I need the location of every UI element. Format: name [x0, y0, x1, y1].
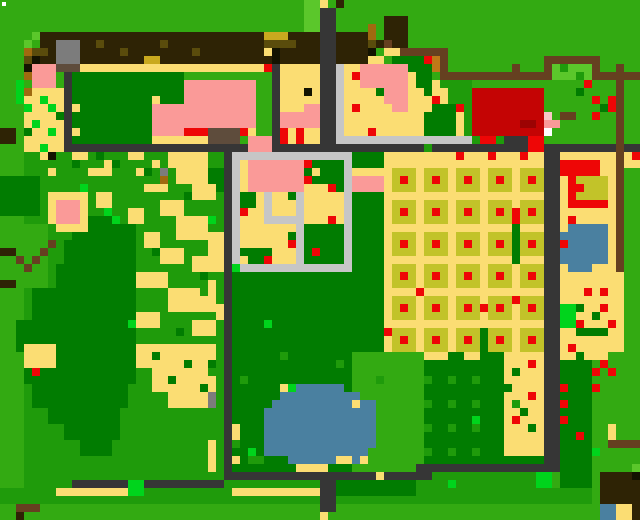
- tile-red-marker: [264, 256, 272, 264]
- tile-roof-pink: [360, 64, 408, 88]
- tile-sand-path: [360, 456, 368, 464]
- tile-sand-path: [264, 48, 272, 56]
- tile-grass-medium: [512, 400, 520, 408]
- tile-grass-bright: [256, 80, 272, 136]
- tile-roof-pink: [184, 80, 256, 128]
- tile-red-marker: [432, 304, 440, 312]
- tile-red-marker: [512, 296, 520, 304]
- tile-sand-path: [88, 168, 112, 176]
- tile-green-vivid: [128, 320, 136, 328]
- tile-grass-medium: [240, 376, 248, 384]
- tile-fence-brown: [512, 64, 520, 72]
- tile-foliage-dark: [432, 104, 456, 112]
- tile-red-marker: [496, 336, 504, 344]
- tile-red-marker: [592, 96, 600, 104]
- tile-sand-path: [208, 280, 216, 296]
- tile-sand-path: [424, 96, 432, 104]
- tile-road-dark: [320, 480, 336, 512]
- tile-green-vivid: [80, 184, 88, 192]
- tile-grass-medium: [448, 448, 456, 456]
- tile-sand-path: [456, 112, 464, 136]
- tile-red-marker: [240, 208, 248, 216]
- tile-foliage-dark: [56, 264, 136, 288]
- tile-black: [368, 48, 376, 56]
- tile-sand-path: [280, 64, 320, 72]
- tile-sand-path: [80, 64, 256, 72]
- tile-water-blue: [568, 264, 592, 272]
- tile-sand-path: [240, 256, 248, 264]
- tile-red-marker: [560, 240, 568, 248]
- tile-foliage-dark: [512, 224, 520, 264]
- tile-red-marker: [568, 344, 576, 352]
- tile-grass-medium: [232, 440, 240, 448]
- tile-wall-light: [232, 152, 352, 160]
- tile-olive-dark: [32, 48, 48, 56]
- tile-sand-path: [24, 344, 56, 368]
- tile-wall-light: [264, 192, 272, 224]
- tile-foliage-dark: [304, 168, 312, 176]
- tile-grass-medium: [472, 448, 480, 456]
- tile-red-marker: [456, 152, 464, 160]
- tile-red-marker: [32, 368, 40, 376]
- tile-foliage-dark: [576, 304, 584, 312]
- tile-gold-brown: [368, 24, 376, 40]
- tile-red-marker: [584, 288, 592, 296]
- tile-fence-brown: [616, 80, 624, 272]
- tile-foliage-dark: [200, 272, 208, 280]
- tile-green-light: [304, 0, 320, 32]
- tile-foliage-dark: [24, 128, 32, 136]
- tile-gold: [264, 32, 288, 40]
- tile-sand-path: [192, 256, 208, 272]
- tile-sand-path: [208, 440, 216, 472]
- tile-red-marker: [464, 240, 472, 248]
- tile-road-dark: [72, 480, 224, 488]
- tile-grass-medium: [424, 424, 432, 432]
- tile-gold-brown: [24, 48, 32, 56]
- tile-road-dark: [424, 464, 552, 472]
- tile-wall-light: [336, 64, 344, 144]
- tile-red-marker: [480, 304, 488, 312]
- tile-grass-medium: [448, 400, 456, 408]
- tile-grass-medium: [576, 72, 584, 80]
- tile-grass-medium: [336, 360, 344, 368]
- tile-red-marker: [528, 272, 536, 280]
- tile-sand-path: [144, 184, 168, 192]
- tile-roof-pink: [56, 200, 80, 224]
- tile-fence-brown: [592, 56, 600, 72]
- tile-fence-brown: [16, 256, 24, 264]
- tile-red-marker: [608, 368, 616, 376]
- tile-red-marker: [432, 336, 440, 344]
- tile-foliage-dark: [184, 192, 192, 200]
- tile-foliage-dark: [480, 328, 488, 352]
- tile-sand-path: [504, 352, 544, 456]
- tile-foliage-dark: [352, 152, 384, 168]
- tile-green-light: [552, 64, 592, 80]
- tile-foliage-dark: [288, 232, 296, 240]
- tile-white: [2, 2, 6, 6]
- tile-sand-path: [320, 512, 328, 520]
- tile-red-marker: [528, 136, 544, 144]
- tile-fence-brown: [440, 56, 448, 72]
- tile-sand-path: [136, 272, 168, 288]
- tile-brown-dark: [16, 512, 24, 520]
- tile-sand-path: [336, 456, 352, 464]
- tile-red-marker: [432, 208, 440, 216]
- tile-foliage-dark: [528, 424, 536, 432]
- tile-foliage-dark: [504, 384, 512, 392]
- tile-red-marker: [304, 176, 312, 184]
- tile-foliage-dark: [376, 88, 384, 96]
- tile-wall-light: [344, 160, 352, 264]
- tile-green-light: [632, 464, 640, 472]
- tile-foliage-dark: [200, 384, 208, 392]
- tile-sand-path: [616, 504, 632, 520]
- tile-taupe: [208, 128, 240, 144]
- tile-grass-medium: [472, 424, 480, 432]
- tile-foliage-dark: [112, 160, 120, 168]
- tile-red-marker: [600, 304, 608, 312]
- tile-green-vivid: [40, 144, 48, 152]
- tile-red-marker: [400, 336, 408, 344]
- tile-sand-path: [144, 232, 160, 248]
- tile-road-dark: [544, 152, 560, 472]
- tile-water-blue: [368, 400, 376, 448]
- tile-red-marker: [592, 112, 600, 120]
- tile-foliage-dark: [520, 408, 528, 416]
- tile-red-marker: [512, 416, 520, 424]
- tile-green-light: [24, 40, 32, 48]
- tile-sand-path: [48, 168, 56, 176]
- tile-foliage-dark: [176, 328, 184, 336]
- tile-red-marker: [240, 128, 248, 136]
- tile-wall-light: [232, 160, 240, 264]
- tile-foliage-dark: [600, 104, 608, 112]
- tile-water-blue: [568, 224, 608, 264]
- tile-foliage-dark: [64, 240, 136, 264]
- tile-red-marker: [432, 240, 440, 248]
- tile-fence-brown: [544, 56, 552, 80]
- tile-sand-path: [432, 80, 440, 88]
- tile-green-vivid: [104, 208, 112, 216]
- tile-gold-brown: [24, 88, 32, 96]
- tile-sand-path: [160, 200, 184, 216]
- tile-water-blue: [272, 400, 368, 456]
- tile-roof-pink: [544, 120, 560, 128]
- tile-fence-brown: [40, 248, 48, 256]
- tile-sand-path: [152, 136, 208, 144]
- tile-grass-medium: [448, 376, 456, 384]
- tile-red-marker: [528, 336, 536, 344]
- tile-sand-path: [192, 320, 216, 336]
- tile-brown-dark: [40, 32, 336, 64]
- tile-fence-brown: [384, 40, 392, 48]
- tile-fence-brown: [16, 504, 40, 512]
- tile-red-marker: [520, 152, 528, 160]
- tile-red-marker: [576, 432, 584, 440]
- tile-roof-pink: [304, 104, 320, 112]
- tile-water-blue: [560, 232, 568, 264]
- tile-sand-path: [152, 96, 160, 104]
- tile-sand-path: [136, 344, 216, 368]
- tile-sand-path: [128, 208, 144, 224]
- tile-foliage-dark: [152, 352, 160, 360]
- tile-sand-path: [80, 192, 88, 232]
- tile-foliage-dark: [424, 112, 456, 136]
- tile-grass-medium: [376, 376, 384, 384]
- tile-brown-dark: [376, 40, 384, 48]
- tile-sand-path: [128, 152, 144, 160]
- tile-sand-path: [168, 152, 208, 168]
- tile-sand-path: [352, 400, 360, 408]
- tile-red-marker: [512, 208, 520, 224]
- tile-green-vivid: [232, 264, 240, 272]
- tile-road-dark: [272, 64, 280, 144]
- tile-foliage-dark: [512, 368, 520, 376]
- tile-foliage-dark: [32, 288, 136, 320]
- tile-foliage-dark: [96, 152, 104, 160]
- tile-red-marker: [568, 216, 576, 224]
- tile-red-marker: [184, 128, 208, 136]
- tile-red-marker: [528, 304, 536, 312]
- tile-red-marker: [400, 208, 408, 216]
- tile-red-marker: [560, 384, 568, 392]
- tile-red-marker: [496, 240, 504, 248]
- tile-sand-path: [152, 160, 160, 168]
- tile-red-marker: [400, 176, 408, 184]
- tile-red-marker: [600, 288, 608, 296]
- tile-sand-path: [304, 216, 312, 224]
- tile-red-marker: [464, 272, 472, 280]
- tile-road-dark: [224, 152, 232, 472]
- tile-sand-path: [384, 48, 400, 56]
- tile-sand-path: [280, 384, 288, 392]
- tile-sand-path: [168, 392, 208, 408]
- tile-red-marker: [304, 160, 312, 168]
- tile-sand-path: [192, 184, 216, 200]
- tile-grass-medium: [448, 424, 456, 432]
- tile-fence-brown: [616, 64, 624, 72]
- tile-black: [24, 64, 32, 72]
- tile-road-dark: [320, 8, 336, 152]
- tile-fence-brown: [48, 240, 56, 248]
- tile-green-vivid: [448, 480, 456, 488]
- tile-foliage-dark: [80, 440, 112, 456]
- tile-grass-medium: [472, 136, 480, 144]
- tile-gold: [144, 56, 160, 64]
- tile-olive-dark: [24, 56, 32, 64]
- tile-green-vivid: [560, 304, 576, 328]
- tile-red-marker: [584, 80, 592, 88]
- tile-foliage-dark: [288, 192, 296, 200]
- tile-brown-dark: [0, 280, 16, 288]
- tile-fence-brown: [552, 56, 592, 64]
- tile-grass-medium: [424, 448, 432, 456]
- tile-brown-dark: [336, 0, 344, 8]
- tile-foliage-dark: [72, 160, 80, 168]
- tile-water-blue: [296, 384, 344, 392]
- tile-green-vivid: [472, 416, 480, 424]
- tile-red-marker: [600, 360, 608, 368]
- tile-red-marker: [568, 200, 608, 208]
- tile-foliage-dark: [576, 352, 584, 360]
- tile-sand-path: [56, 192, 80, 200]
- tile-sand-path: [72, 152, 88, 160]
- tile-foliage-dark: [336, 480, 416, 496]
- tile-sand-path: [320, 0, 328, 8]
- tile-road-dark: [64, 144, 640, 152]
- tile-stone-gray: [56, 40, 80, 64]
- tile-foliage-dark: [152, 248, 160, 256]
- tile-foliage-dark: [304, 224, 344, 264]
- tile-foliage-dark: [184, 360, 192, 368]
- tile-foliage-dark: [240, 432, 256, 440]
- farm-map-canvas[interactable]: [0, 0, 640, 520]
- tile-red-marker: [560, 160, 600, 176]
- tile-roof-pink: [280, 112, 320, 128]
- tile-green-light: [32, 32, 40, 40]
- tile-red-marker: [264, 64, 272, 72]
- tile-wall-light: [344, 136, 472, 144]
- tile-brown-dark: [0, 248, 16, 256]
- tile-foliage-dark: [56, 112, 64, 120]
- tile-red-marker: [432, 176, 440, 184]
- tile-olive-dark: [160, 40, 168, 48]
- tile-water-blue: [264, 448, 272, 456]
- tile-sand-path: [232, 488, 320, 496]
- tile-grass-medium: [424, 376, 432, 384]
- tile-red-marker: [528, 176, 536, 184]
- tile-red-marker: [296, 128, 304, 144]
- tile-red-marker: [496, 272, 504, 280]
- tile-green-vivid: [536, 472, 552, 488]
- tile-sand-path: [216, 304, 224, 320]
- tile-barn-red-dark: [520, 120, 536, 128]
- tile-green-vivid: [32, 120, 40, 128]
- tile-red-marker: [528, 392, 536, 400]
- tile-sand-path: [432, 88, 448, 96]
- tile-green-vivid: [264, 320, 272, 328]
- tile-red-marker: [288, 240, 296, 248]
- tile-black: [32, 56, 40, 64]
- tile-roof-pink: [384, 88, 408, 104]
- tile-red-marker: [528, 208, 536, 216]
- tile-fence-brown: [592, 72, 640, 80]
- tile-sand-path: [176, 216, 208, 240]
- tile-foliage-dark: [352, 192, 384, 352]
- tile-foliage-dark: [240, 248, 248, 256]
- tile-sand-path: [232, 424, 240, 432]
- tile-red-marker: [400, 304, 408, 312]
- tile-wall-light: [296, 192, 304, 264]
- tile-roof-pink: [248, 160, 304, 192]
- tile-sand-path: [208, 376, 216, 392]
- tile-red-marker: [400, 272, 408, 280]
- tile-red-marker: [464, 208, 472, 216]
- tile-sand-path: [376, 472, 384, 480]
- tile-black: [632, 472, 640, 480]
- tile-grass-medium: [424, 144, 432, 152]
- tile-red-marker: [328, 184, 336, 192]
- tile-roof-pink: [352, 176, 384, 192]
- tile-fence-brown: [32, 256, 40, 264]
- tile-fence-brown: [24, 264, 32, 272]
- tile-foliage-dark: [32, 384, 128, 408]
- tile-sand-path: [312, 168, 320, 176]
- tile-sand-path: [96, 192, 112, 208]
- tile-foliage-dark: [424, 88, 432, 96]
- tile-red-marker: [280, 128, 288, 144]
- tile-red-marker: [432, 96, 440, 104]
- tile-fence-brown: [560, 112, 576, 120]
- tile-gold-brown: [24, 72, 32, 80]
- tile-sand-path: [160, 248, 184, 264]
- tile-red-marker: [328, 216, 336, 224]
- tile-road-dark: [64, 72, 72, 152]
- tile-red-marker: [632, 152, 640, 160]
- tile-water-blue: [264, 408, 272, 448]
- tile-fence-brown: [400, 48, 448, 56]
- tile-grass-medium: [248, 456, 264, 464]
- tile-green-vivid: [40, 96, 48, 104]
- tile-foliage-dark: [424, 80, 432, 88]
- tile-olive-dark: [264, 40, 296, 48]
- tile-red-marker: [416, 288, 424, 296]
- tile-sand-path: [48, 192, 56, 224]
- tile-red-marker: [528, 360, 536, 368]
- tile-road-dark: [504, 136, 528, 144]
- tile-red-marker: [488, 152, 496, 160]
- tile-sand-path: [40, 152, 48, 160]
- tile-olive-dark: [120, 48, 128, 56]
- tile-foliage-dark: [144, 168, 152, 176]
- tile-sand-path: [56, 224, 80, 232]
- tile-green-vivid: [16, 80, 24, 104]
- tile-red-marker: [480, 136, 496, 144]
- tile-sand-path: [72, 104, 80, 112]
- tile-sand-path: [304, 184, 312, 192]
- tile-water-blue: [280, 392, 360, 400]
- tile-foliage-dark: [48, 408, 120, 424]
- tile-sand-path: [72, 128, 80, 136]
- tile-red-marker: [432, 272, 440, 280]
- tile-sand-path: [136, 312, 160, 328]
- tile-sand-path: [312, 184, 328, 192]
- tile-roof-pink: [32, 64, 56, 88]
- tile-red-marker: [384, 328, 392, 336]
- tile-foliage-dark: [168, 376, 176, 384]
- tile-sand-path: [232, 432, 240, 440]
- tile-red-marker: [608, 104, 616, 112]
- tile-foliage-dark: [592, 312, 600, 320]
- tile-water-blue: [600, 504, 616, 520]
- tile-fence-brown: [608, 440, 640, 448]
- tile-sand-path: [424, 104, 432, 112]
- tile-red-marker: [352, 72, 360, 80]
- tile-red-marker: [608, 96, 616, 104]
- tile-green-vivid: [48, 128, 56, 136]
- tile-foliage-dark: [240, 192, 256, 208]
- tile-red-marker: [456, 104, 464, 112]
- tile-grass-medium: [472, 400, 480, 408]
- tile-foliage-dark: [560, 360, 592, 488]
- tile-red-marker: [528, 240, 536, 248]
- tile-red-marker: [592, 384, 600, 392]
- tile-roof-pink: [248, 136, 272, 152]
- tile-roof-pink: [392, 104, 408, 112]
- tile-green-vivid: [112, 216, 120, 224]
